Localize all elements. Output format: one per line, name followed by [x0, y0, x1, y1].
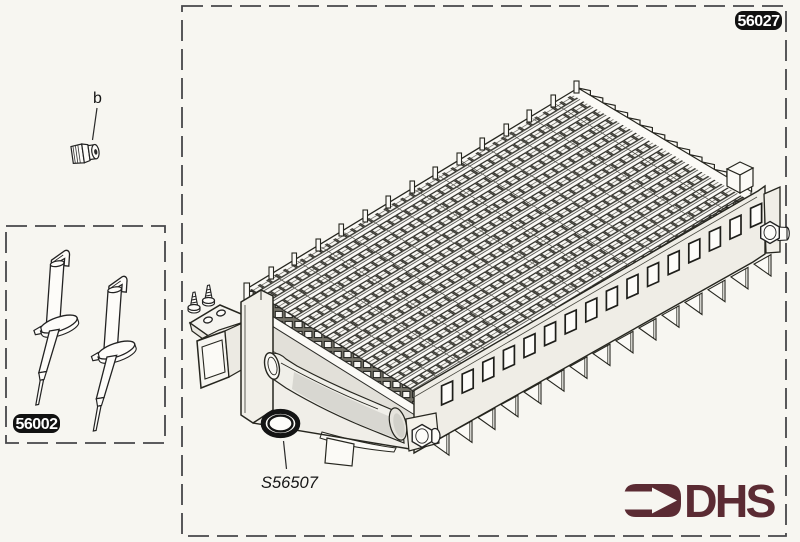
- svg-text:S56507: S56507: [261, 474, 319, 492]
- svg-text:b: b: [93, 90, 102, 107]
- svg-text:DHS: DHS: [684, 475, 776, 527]
- svg-text:56002: 56002: [16, 416, 59, 433]
- svg-text:56027: 56027: [738, 13, 781, 30]
